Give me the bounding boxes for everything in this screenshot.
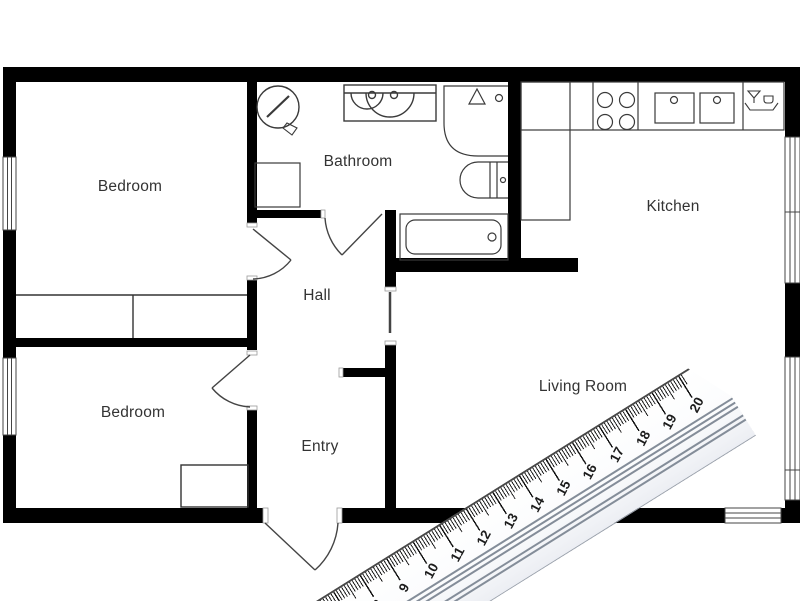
dishwasher-icon [745, 91, 778, 110]
washing-machine [257, 86, 299, 135]
kitchen-double-sink [655, 93, 734, 123]
door-front [265, 523, 338, 570]
wall-left [3, 67, 16, 523]
wardrobe-bedroom2 [181, 465, 248, 507]
double-vanity-sink [344, 85, 436, 121]
wall-bottom [3, 508, 800, 523]
front-door-opening [268, 508, 337, 523]
wall-bath-kitchen [508, 82, 521, 258]
door-jamb-caps [247, 210, 396, 523]
window-bedroom1-west [3, 157, 16, 230]
window-kitchen-east [785, 137, 800, 283]
window-bedroom2-west [3, 358, 16, 435]
closets [16, 295, 248, 507]
bathtub [400, 214, 508, 260]
window-living-east [785, 357, 800, 500]
door-bedroom1 [253, 229, 291, 279]
door-bathroom [325, 214, 382, 255]
wall-entry-east [385, 345, 396, 508]
toilet [460, 162, 508, 198]
door-bedroom2 [212, 355, 250, 407]
stove-burners [598, 93, 635, 130]
wall-hall-east-a [385, 210, 396, 287]
shower [444, 86, 508, 156]
floor-plan-drawing [0, 0, 800, 601]
floor-plan-canvas: BedroomBathroomKitchenHallBedroomEntryLi… [0, 0, 800, 601]
bathroom-cabinet [255, 163, 300, 207]
ruler-number-9: 9 [396, 581, 413, 595]
ruler-number-8: 8 [369, 597, 386, 601]
wall-bath-south [255, 210, 325, 218]
wall-entry-north [343, 368, 385, 377]
wall-openings [268, 508, 337, 523]
wall-top [3, 67, 800, 82]
wall-bedrooms-divider [16, 338, 255, 347]
bathroom-fixtures [255, 85, 508, 260]
kitchen-counter [521, 82, 784, 220]
window-living-south [725, 508, 781, 523]
kitchen-fixtures [521, 82, 784, 220]
